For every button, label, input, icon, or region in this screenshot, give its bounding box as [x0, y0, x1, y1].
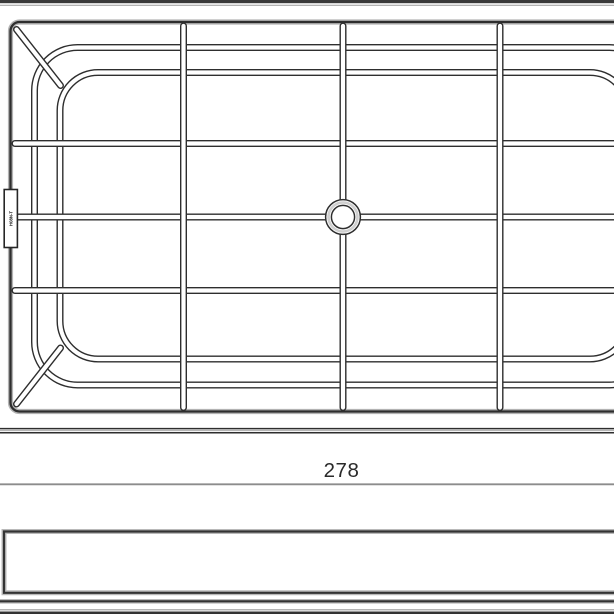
drawing-canvas: H08N-T 278	[0, 0, 614, 614]
center-ring	[326, 200, 361, 235]
dimension-label: 278	[324, 459, 360, 482]
hob-surface-lines	[0, 601, 614, 613]
technical-drawing: H08N-T 278	[0, 0, 614, 614]
side-tab-label: H08N-T	[9, 211, 14, 226]
side-view	[0, 532, 614, 613]
separator-band	[0, 429, 614, 433]
side-view-body	[4, 532, 614, 593]
side-tab: H08N-T	[4, 190, 17, 248]
top-crop-band	[0, 0, 614, 5]
plan-view: H08N-T	[4, 22, 614, 412]
